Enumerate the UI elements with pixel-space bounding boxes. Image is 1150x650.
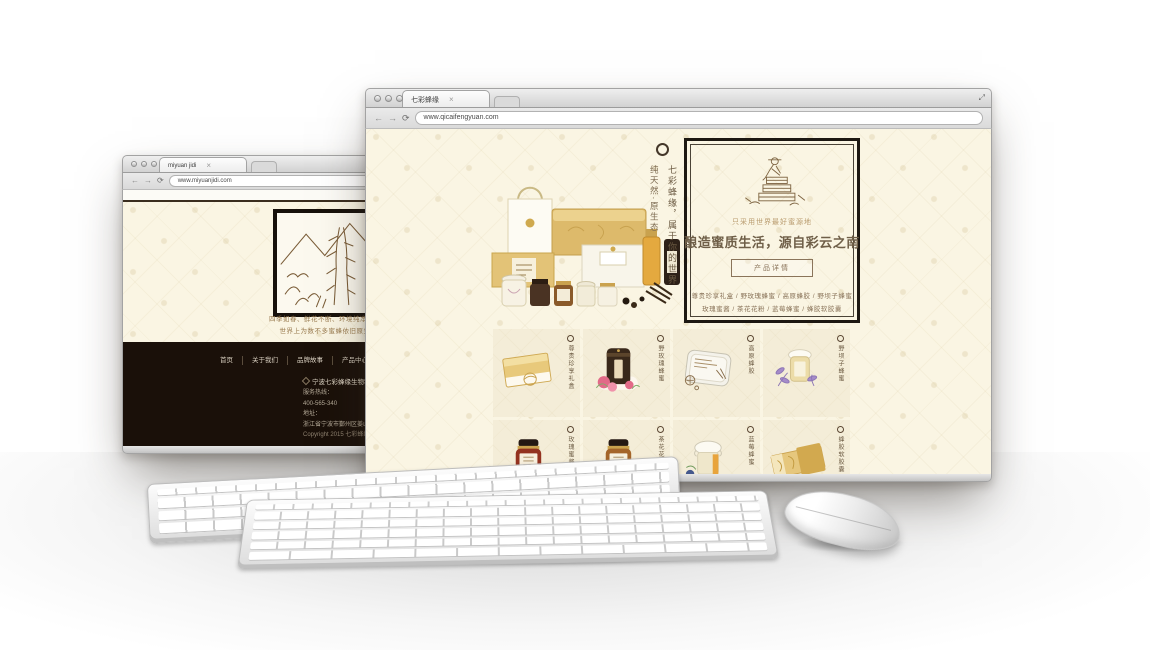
product-photo-tin-box xyxy=(675,343,741,395)
target-ring-icon xyxy=(837,335,844,342)
window-traffic-lights xyxy=(374,95,403,102)
target-ring-icon xyxy=(567,426,574,433)
product-photo-jar-lavender xyxy=(765,343,831,395)
product-label: 蓝莓蜂蜜 xyxy=(746,436,755,466)
zoom-window-button[interactable] xyxy=(396,95,403,102)
zoom-window-button[interactable] xyxy=(151,161,157,167)
product-list-line-1: 尊贵珍享礼盒 / 野玫瑰蜂蜜 / 高原蜂胶 / 野坝子蜂蜜 xyxy=(692,290,853,303)
close-window-button[interactable] xyxy=(374,95,381,102)
new-tab-stub[interactable] xyxy=(251,161,277,172)
reload-button[interactable]: ⟳ xyxy=(157,177,164,185)
product-details-button[interactable]: 产品详情 xyxy=(731,259,813,277)
scene: miyuan jidi × ⤢ ← → ⟳ www.miyuanjidi.com xyxy=(0,0,1150,650)
front-site-content: 七彩蜂缘，属于你的世界 纯天然·原生态 xyxy=(365,129,992,474)
circle-mark-icon xyxy=(656,143,669,156)
footer-nav-home[interactable]: 首页 xyxy=(211,356,243,365)
product-label: 蜂胶软胶囊 xyxy=(836,436,845,474)
product-label: 野坝子蜂蜜 xyxy=(836,345,845,383)
target-ring-icon xyxy=(657,426,664,433)
product-card-plateau-propolis[interactable]: 高原蜂胶 xyxy=(673,329,760,417)
product-card-propolis-capsules[interactable]: 蜂胶软胶囊 xyxy=(763,420,850,474)
target-ring-icon xyxy=(747,335,754,342)
tab-title: miyuan jidi xyxy=(168,163,196,169)
forward-button[interactable]: → xyxy=(144,177,152,185)
reload-button[interactable]: ⟳ xyxy=(402,114,410,123)
tab-title: 七彩蜂缘 xyxy=(411,95,439,105)
back-button[interactable]: ← xyxy=(374,114,383,123)
product-label: 尊贵珍享礼盒 xyxy=(566,345,575,390)
product-card-wild-rose-honey[interactable]: 野玫瑰蜂蜜 xyxy=(583,329,670,417)
product-photo-gold-sleeve-box xyxy=(765,434,831,474)
vertical-tagline: 七彩蜂缘，属于你的世界 纯天然·原生态 xyxy=(649,143,677,286)
minimize-window-button[interactable] xyxy=(141,161,147,167)
browser-tab[interactable]: 七彩蜂缘 × xyxy=(402,90,490,107)
browser-tab[interactable]: miyuan jidi × xyxy=(159,157,247,172)
back-button[interactable]: ← xyxy=(131,177,139,185)
tagline-column-1: 七彩蜂缘，属于你的世界 xyxy=(666,165,677,286)
product-list-line-2: 玫瑰蜜酱 / 茶花花粉 / 蓝莓蜂蜜 / 蜂胶软胶囊 xyxy=(692,303,853,316)
product-photo-gift-box xyxy=(495,343,561,395)
footer-nav-about[interactable]: 关于我们 xyxy=(243,356,288,365)
hero-kicker: 只采用世界最好蜜源地 xyxy=(732,217,812,227)
close-window-button[interactable] xyxy=(131,161,137,167)
minimize-window-button[interactable] xyxy=(385,95,392,102)
product-card-gift-box[interactable]: 尊贵珍享礼盒 xyxy=(493,329,580,417)
address-bar[interactable]: www.qicaifengyuan.com xyxy=(415,111,983,125)
front-browser-window: 七彩蜂缘 × ⤢ ← → ⟳ www.qicaifengyuan.com xyxy=(365,88,992,482)
forward-button[interactable]: → xyxy=(388,114,397,123)
product-card-yebazi-honey[interactable]: 野坝子蜂蜜 xyxy=(763,329,850,417)
product-label: 野玫瑰蜂蜜 xyxy=(656,345,665,383)
beekeeper-sketch xyxy=(716,155,828,214)
product-photo-rose-canister xyxy=(585,343,651,395)
product-grid: 尊贵珍享礼盒 xyxy=(493,329,850,474)
target-ring-icon xyxy=(567,335,574,342)
product-card-blueberry-honey[interactable]: 蓝莓蜂蜜 xyxy=(673,420,760,474)
front-address-row: ← → ⟳ www.qicaifengyuan.com xyxy=(365,108,992,129)
tab-close-icon[interactable]: × xyxy=(449,96,454,104)
product-label: 高原蜂胶 xyxy=(746,345,755,375)
keyboard-keys xyxy=(248,496,767,561)
window-traffic-lights xyxy=(131,161,157,167)
hero-title: 酿造蜜质生活，源自彩云之南 xyxy=(684,232,860,251)
target-ring-icon xyxy=(657,335,664,342)
new-tab-stub[interactable] xyxy=(494,96,520,107)
footer-nav-story[interactable]: 品牌故事 xyxy=(288,356,333,365)
tagline-column-2: 纯天然·原生态 xyxy=(649,165,659,286)
target-ring-icon xyxy=(837,426,844,433)
keyboard-front xyxy=(237,490,779,569)
front-titlebar: 七彩蜂缘 × ⤢ xyxy=(365,88,992,108)
hero-inner-frame: 只采用世界最好蜜源地 酿造蜜质生活，源自彩云之南 产品详情 尊贵珍享礼盒 / 野… xyxy=(690,144,854,317)
target-ring-icon xyxy=(747,426,754,433)
vertical-tagline-columns: 七彩蜂缘，属于你的世界 纯天然·原生态 xyxy=(649,165,677,286)
resize-window-icon[interactable]: ⤢ xyxy=(979,93,985,103)
product-photo-jar-cloth-top xyxy=(675,434,741,474)
hero-banner: 只采用世界最好蜜源地 酿造蜜质生活，源自彩云之南 产品详情 尊贵珍享礼盒 / 野… xyxy=(684,138,860,323)
tab-close-icon[interactable]: × xyxy=(206,162,211,170)
hero-product-list: 尊贵珍享礼盒 / 野玫瑰蜂蜜 / 高原蜂胶 / 野坝子蜂蜜 玫瑰蜜酱 / 茶花花… xyxy=(692,290,853,316)
